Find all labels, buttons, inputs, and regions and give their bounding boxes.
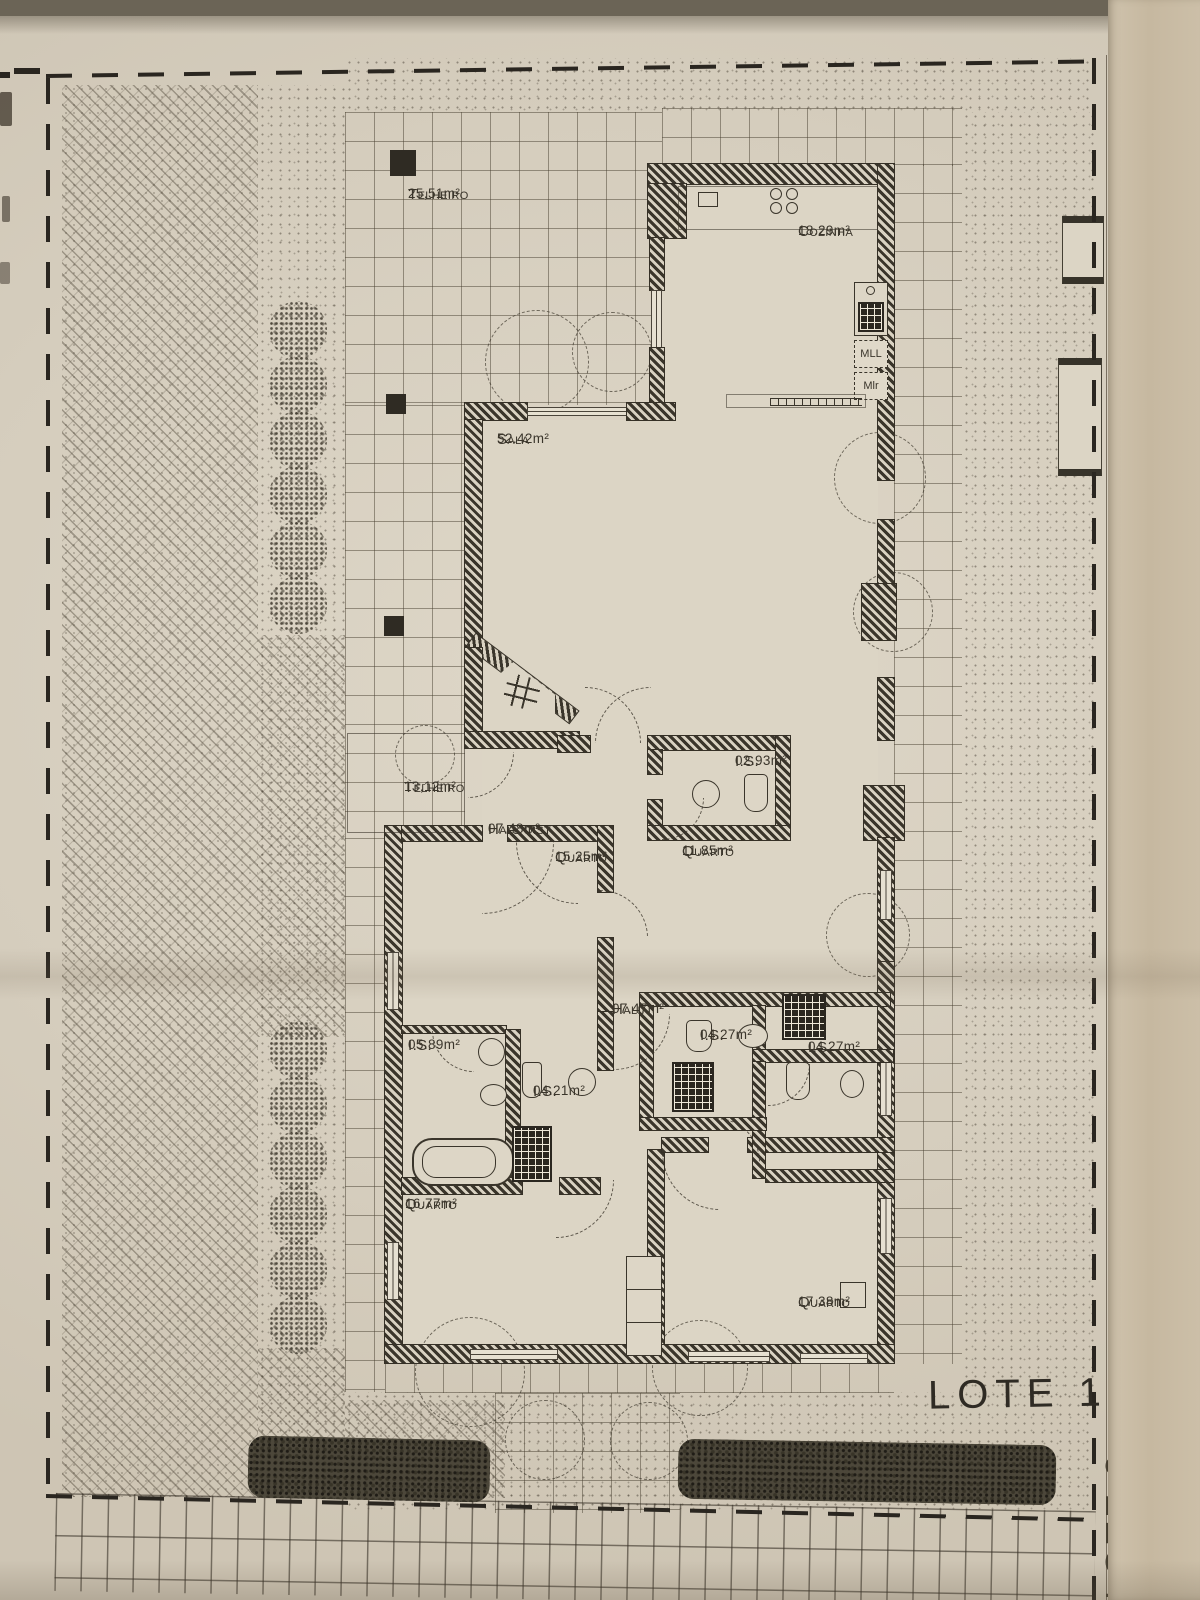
tree xyxy=(269,1021,327,1079)
washbasin-icon xyxy=(478,1038,505,1066)
terrace-tiles-left-low xyxy=(345,838,385,1392)
bathtub-inner xyxy=(422,1146,496,1178)
door-arc xyxy=(556,1180,614,1238)
paper-fold-top xyxy=(0,0,1200,16)
shower-icon xyxy=(782,994,826,1040)
wall-segment xyxy=(878,520,894,586)
grass-right xyxy=(962,112,1095,1397)
stove-burner-icon xyxy=(786,188,798,200)
tree xyxy=(269,1296,327,1354)
wall-segment xyxy=(650,238,664,290)
wall-segment xyxy=(598,1012,613,1070)
wall-segment xyxy=(878,962,894,1362)
tree xyxy=(269,1131,327,1189)
tree xyxy=(269,1076,327,1134)
shrub-outline xyxy=(610,1402,688,1480)
window xyxy=(387,1242,399,1300)
door-arc xyxy=(716,1118,760,1162)
stove-burner-icon xyxy=(786,202,798,214)
wardrobe xyxy=(626,1256,662,1356)
tree xyxy=(269,1186,327,1244)
hedge-row xyxy=(678,1439,1057,1506)
wall-segment xyxy=(862,584,896,640)
tree-canopy-outline xyxy=(415,1317,525,1427)
tree xyxy=(269,521,327,579)
window xyxy=(880,1198,892,1254)
stove-burner-icon xyxy=(770,188,782,200)
terrace-tiles-top-strip xyxy=(662,108,962,166)
dishwasher-box: MLL xyxy=(854,340,888,368)
tree xyxy=(269,411,327,469)
door-arc xyxy=(468,752,514,798)
window xyxy=(880,870,892,920)
door-arc xyxy=(662,1152,720,1210)
tree xyxy=(269,1241,327,1299)
window xyxy=(800,1353,868,1364)
edge-smudge xyxy=(2,196,10,222)
door-arc xyxy=(768,1064,810,1106)
wall-segment xyxy=(648,164,894,184)
tree xyxy=(269,466,327,524)
radiator-fins xyxy=(770,398,862,406)
door-arc xyxy=(600,890,648,938)
basin-icon xyxy=(858,302,884,332)
tree xyxy=(269,356,327,414)
shower-icon xyxy=(512,1126,552,1182)
site-plan-photo: MLL Mlr Telheiro25,51m² Cozinha18.29m xyxy=(0,0,1200,1600)
wall-segment xyxy=(748,1138,894,1152)
wall-segment xyxy=(662,1138,708,1152)
door-arc xyxy=(662,798,704,840)
column xyxy=(386,394,406,414)
stove-burner-icon xyxy=(770,202,782,214)
terrace-tiles-right-band xyxy=(894,164,962,1364)
column xyxy=(384,616,404,636)
column xyxy=(390,150,416,176)
washbasin-icon xyxy=(840,1070,864,1098)
shower-icon xyxy=(672,1062,714,1112)
tree-canopy-outline xyxy=(652,1320,748,1416)
boundary-line-left xyxy=(46,78,50,1498)
wall-segment xyxy=(648,736,790,750)
wall-segment xyxy=(648,750,662,774)
boundary-tick xyxy=(0,72,10,78)
window xyxy=(880,1060,892,1116)
paper-crease-bottom xyxy=(0,1560,1200,1600)
paper-fold-top-shadow xyxy=(0,16,1200,34)
wall-segment xyxy=(766,1170,894,1182)
door-arc xyxy=(614,1014,670,1070)
wall-segment xyxy=(650,348,664,410)
tree-canopy-outline xyxy=(572,312,652,392)
bidet-icon xyxy=(480,1084,507,1106)
window xyxy=(651,290,662,348)
paper-edge-right-band xyxy=(1108,0,1200,1600)
tree xyxy=(269,576,327,634)
shrub-outline xyxy=(505,1400,585,1480)
tree xyxy=(269,301,327,359)
toilet-icon xyxy=(744,774,768,812)
boundary-tick xyxy=(14,68,40,74)
wall-segment xyxy=(627,403,675,420)
plot-edge-line xyxy=(1106,55,1107,1600)
door-arc xyxy=(595,687,651,743)
wall-segment xyxy=(465,420,482,648)
paper-crease-horizontal xyxy=(0,948,1200,1000)
paving-hatch-left xyxy=(62,85,258,1497)
wall-segment xyxy=(864,786,904,840)
tap-icon xyxy=(866,286,875,295)
edge-smudge xyxy=(0,262,10,284)
wall-segment xyxy=(465,403,527,420)
window xyxy=(688,1351,770,1362)
edge-smudge xyxy=(0,92,12,126)
lot-label-lote1: LOTE 1 xyxy=(928,1370,1109,1418)
wall-segment xyxy=(878,678,894,740)
planter-box xyxy=(1062,216,1104,284)
window xyxy=(470,1349,558,1360)
hedge-row xyxy=(247,1435,490,1502)
boundary-line-right xyxy=(1092,58,1096,1600)
window xyxy=(527,407,627,416)
kitchen-sink-icon xyxy=(698,192,718,207)
